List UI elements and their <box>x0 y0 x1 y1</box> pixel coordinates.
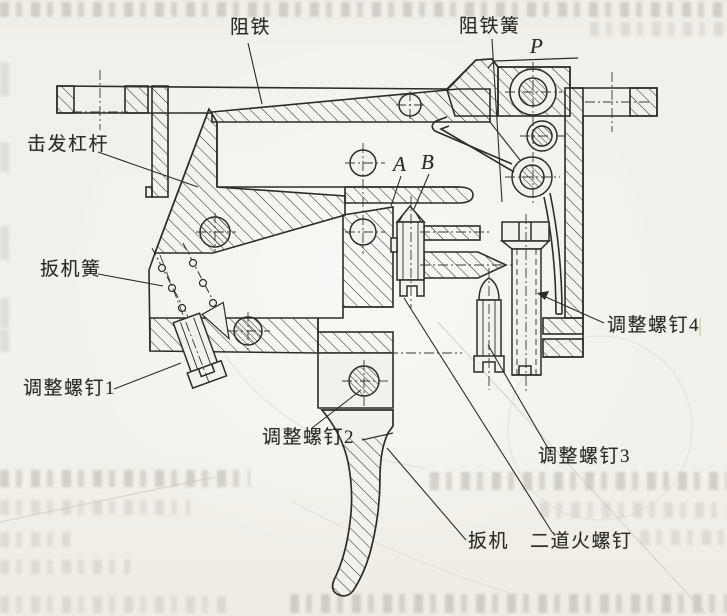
leader-trigger <box>387 448 466 540</box>
second-stage-screw-part <box>391 206 424 296</box>
label-adjust-screw-1: 调整螺钉1 <box>23 378 116 399</box>
label-sear-spring: 阻铁簧 <box>459 16 521 37</box>
rail-mid-block <box>125 86 148 113</box>
scanned-page: 阻铁 阻铁簧 P 击发杠杆 A B 扳机簧 调整螺钉1 调整螺钉2 调整螺钉3 … <box>0 0 727 616</box>
leader-trigger-spring <box>98 274 163 286</box>
rail-left-block <box>57 86 74 113</box>
label-adjust-screw-2: 调整螺钉2 <box>262 427 355 448</box>
frame-mid-bar <box>345 187 473 203</box>
frame-section <box>57 59 657 357</box>
adjust-screw-4 <box>502 222 549 375</box>
label-point-a: A <box>393 154 406 175</box>
housing-slope <box>447 59 498 116</box>
label-trigger-spring: 扳机簧 <box>40 259 102 280</box>
label-sear: 阻铁 <box>230 17 271 38</box>
leader-sear-spring <box>492 39 502 202</box>
left-wall <box>152 86 168 197</box>
leader-sear <box>248 43 262 104</box>
right-wall <box>565 88 583 318</box>
label-second-stage-screw: 二道火螺钉 <box>530 531 633 552</box>
label-adjust-screw-3: 调整螺钉3 <box>538 446 631 467</box>
trigger-bracket-band <box>318 332 393 353</box>
screw4-bracket-upper <box>543 318 583 334</box>
label-trigger: 扳机 <box>468 531 509 552</box>
leader-firing-lever <box>98 152 198 187</box>
left-wall-foot <box>146 187 152 197</box>
trigger-mechanism-drawing <box>0 0 727 616</box>
label-firing-lever: 击发杠杆 <box>27 134 109 155</box>
stage-bar-1 <box>424 226 480 240</box>
label-adjust-screw-4: 调整螺钉4 <box>607 315 700 336</box>
leader-screw1 <box>114 363 181 389</box>
label-force-p: P <box>530 36 543 57</box>
label-point-b: B <box>421 152 434 173</box>
screw4-bracket-lower <box>543 339 583 357</box>
frame-left-mass <box>155 109 345 253</box>
